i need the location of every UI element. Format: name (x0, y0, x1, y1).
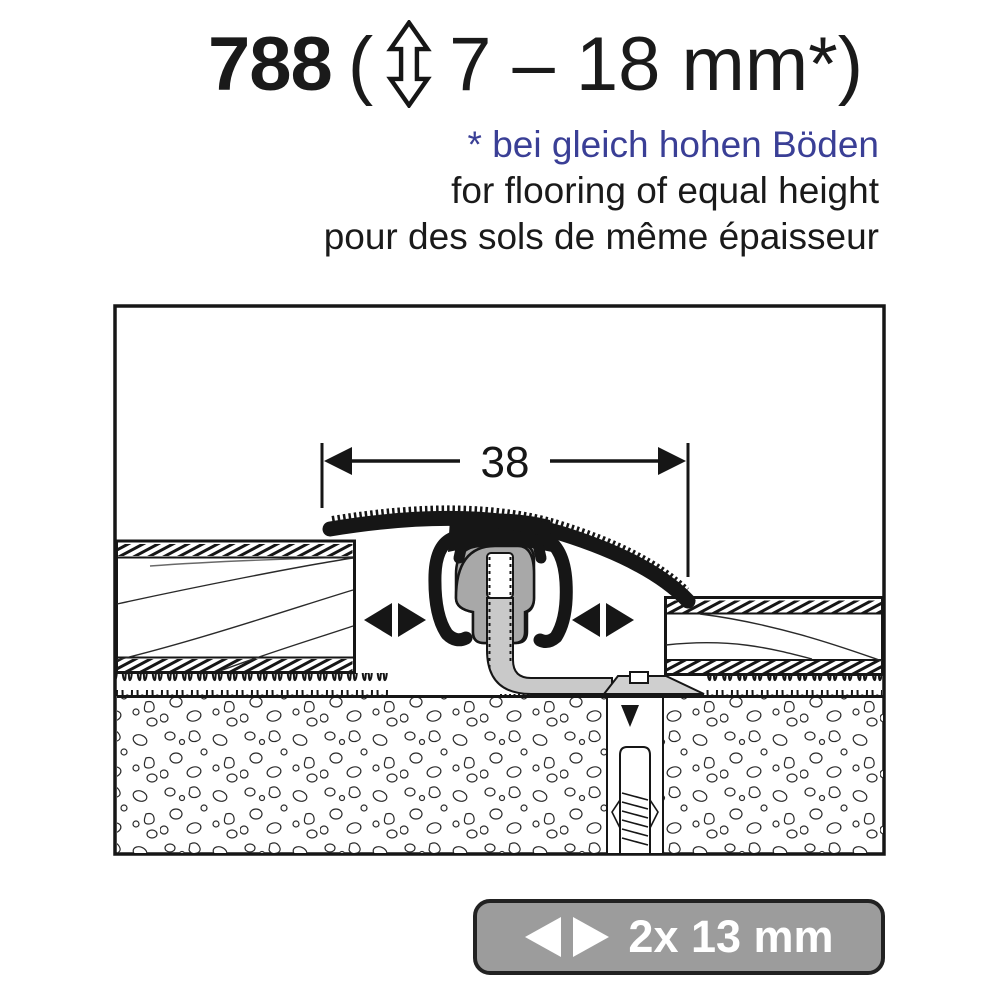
left-right-arrows-icon (524, 916, 610, 958)
product-diagram-page: 788 ( 7 – 18 mm*) * bei gleich hohen Böd… (0, 0, 1000, 1000)
cross-section-diagram: 38 (0, 0, 1000, 1000)
underlay-right (704, 673, 882, 696)
underlay-left (116, 673, 388, 696)
dimension-label: 38 (481, 438, 530, 487)
dowel-anchor (607, 698, 663, 853)
badge-label: 2x 13 mm (628, 911, 833, 963)
spec-badge: 2x 13 mm (473, 899, 885, 975)
screed-concrete (117, 697, 883, 854)
left-flooring (117, 541, 355, 673)
right-flooring (666, 598, 883, 675)
